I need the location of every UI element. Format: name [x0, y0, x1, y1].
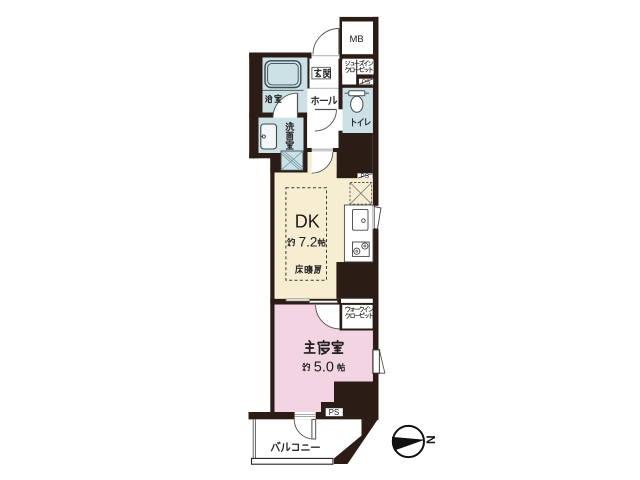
svg-text:7.2: 7.2	[299, 235, 318, 250]
svg-text:MB: MB	[350, 34, 364, 45]
svg-text:N: N	[423, 435, 437, 444]
svg-text:5.0: 5.0	[314, 360, 334, 376]
svg-text:DK: DK	[295, 212, 320, 232]
svg-text:PS: PS	[329, 408, 340, 417]
